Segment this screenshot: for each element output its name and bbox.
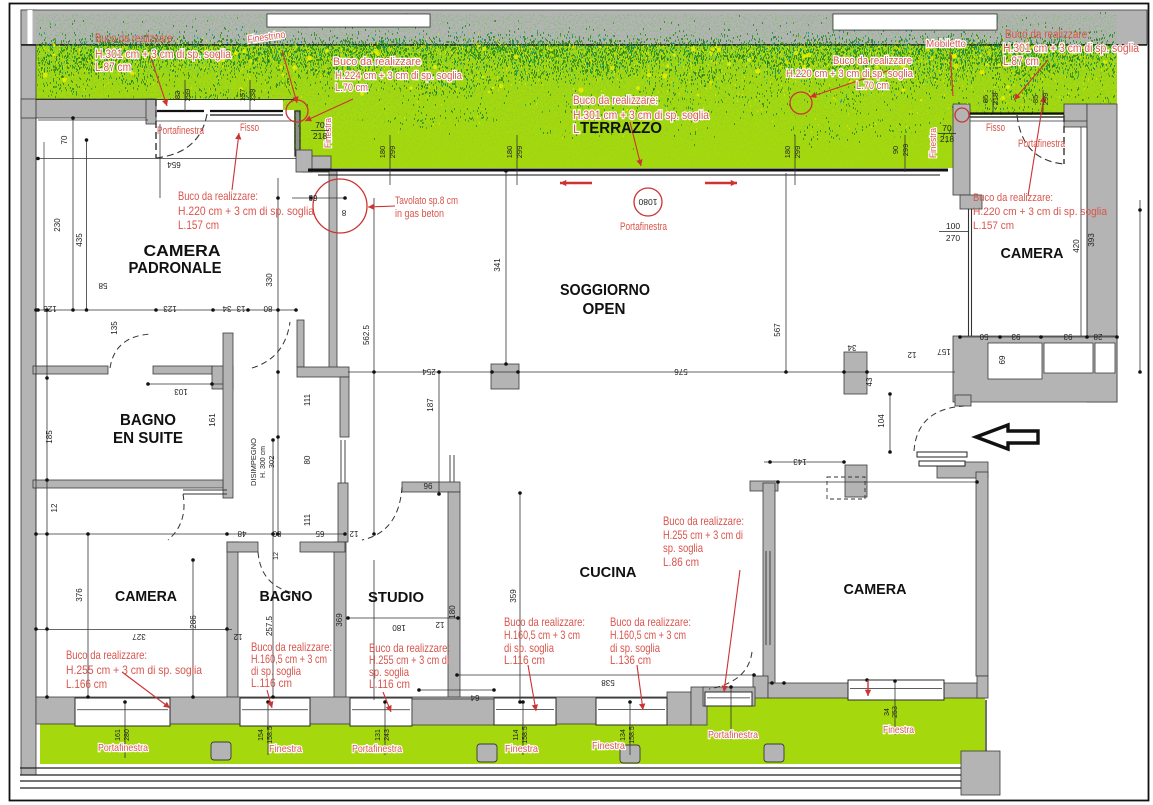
- svg-text:34: 34: [847, 343, 856, 352]
- svg-text:63: 63: [308, 193, 317, 202]
- svg-text:70: 70: [315, 120, 325, 130]
- svg-text:H. 300 cm: H. 300 cm: [260, 446, 267, 478]
- svg-text:H.301 cm + 3 cm di sp. soglia: H.301 cm + 3 cm di sp. soglia: [95, 47, 231, 61]
- svg-text:L.87 cm: L.87 cm: [95, 60, 131, 74]
- svg-text:CAMERA: CAMERA: [1001, 245, 1064, 262]
- svg-text:80: 80: [303, 455, 312, 464]
- svg-text:H.160,5 cm + 3 cm: H.160,5 cm + 3 cm: [504, 628, 580, 642]
- svg-text:135: 135: [110, 321, 119, 335]
- svg-text:Fisso: Fisso: [240, 122, 259, 134]
- svg-text:Finestra: Finestra: [928, 127, 939, 158]
- svg-text:299: 299: [515, 146, 524, 159]
- svg-text:161: 161: [115, 729, 122, 741]
- svg-text:85: 85: [1031, 95, 1040, 103]
- svg-text:654: 654: [167, 160, 181, 169]
- svg-text:538: 538: [601, 678, 615, 687]
- svg-text:CUCINA: CUCINA: [580, 564, 637, 581]
- svg-text:CAMERA: CAMERA: [144, 243, 221, 260]
- svg-text:H.220 cm + 3 cm di sp. soglia: H.220 cm + 3 cm di sp. soglia: [973, 206, 1108, 218]
- svg-text:13: 13: [236, 304, 245, 313]
- svg-text:12: 12: [50, 503, 59, 512]
- svg-text:Fisso: Fisso: [986, 122, 1005, 134]
- svg-text:Buco da realizzare: Buco da realizzare: [333, 56, 421, 68]
- svg-text:302: 302: [267, 456, 276, 469]
- svg-text:Buco da realizzare:: Buco da realizzare:: [573, 93, 658, 107]
- svg-text:393: 393: [1087, 233, 1096, 247]
- svg-text:270: 270: [946, 233, 960, 243]
- svg-text:H.255 cm + 3 cm di sp. soglia: H.255 cm + 3 cm di sp. soglia: [66, 663, 202, 677]
- svg-text:Mobiletto: Mobiletto: [926, 38, 966, 50]
- svg-text:123: 123: [43, 304, 57, 313]
- svg-text:Portafinestra: Portafinestra: [620, 221, 668, 233]
- svg-text:Buco da realizzare:: Buco da realizzare:: [66, 648, 147, 662]
- svg-text:1080: 1080: [638, 197, 657, 207]
- svg-text:12: 12: [273, 552, 280, 560]
- svg-text:Buco da realizzare:: Buco da realizzare:: [95, 31, 175, 45]
- svg-text:104: 104: [877, 414, 886, 428]
- svg-text:Buco da realizzare:: Buco da realizzare:: [1005, 29, 1090, 41]
- svg-text:STUDIO: STUDIO: [368, 589, 424, 606]
- svg-text:H.220 cm + 3 cm di sp. soglia: H.220 cm + 3 cm di sp. soglia: [786, 68, 914, 80]
- svg-text:238: 238: [248, 89, 257, 102]
- svg-text:327: 327: [132, 632, 146, 641]
- svg-text:131: 131: [375, 729, 382, 741]
- svg-text:65: 65: [315, 529, 324, 538]
- svg-text:L.87 cm: L.87 cm: [1003, 56, 1039, 68]
- svg-text:230: 230: [53, 218, 62, 232]
- svg-text:376: 376: [75, 588, 84, 602]
- svg-text:50: 50: [979, 332, 988, 341]
- svg-text:L.116 cm: L.116 cm: [504, 653, 545, 667]
- svg-text:L.116 cm: L.116 cm: [251, 676, 292, 690]
- svg-text:180: 180: [783, 146, 792, 159]
- svg-text:EN SUITE: EN SUITE: [113, 430, 183, 447]
- svg-text:299: 299: [793, 146, 802, 159]
- svg-text:359: 359: [509, 589, 518, 603]
- svg-text:254: 254: [422, 367, 436, 376]
- svg-text:Buco da realizzare:: Buco da realizzare:: [663, 514, 744, 528]
- svg-text:H.160,5 cm + 3 cm: H.160,5 cm + 3 cm: [610, 628, 686, 642]
- svg-text:12: 12: [233, 632, 242, 641]
- svg-text:48: 48: [237, 529, 246, 538]
- svg-text:Buco da realizzare: Buco da realizzare: [833, 55, 912, 67]
- svg-text:Portafinestra: Portafinestra: [352, 743, 402, 755]
- svg-text:L.157 cm: L.157 cm: [178, 218, 219, 232]
- svg-text:TERRAZZO: TERRAZZO: [580, 120, 662, 137]
- svg-text:L.157 cm: L.157 cm: [973, 220, 1014, 232]
- svg-text:299: 299: [901, 144, 910, 157]
- svg-text:158.5: 158.5: [522, 726, 529, 744]
- svg-text:299: 299: [388, 146, 397, 159]
- svg-text:PADRONALE: PADRONALE: [129, 260, 222, 277]
- svg-text:DISIMPEGNO: DISIMPEGNO: [249, 438, 258, 486]
- svg-text:134: 134: [620, 729, 627, 741]
- svg-text:435: 435: [75, 233, 84, 247]
- svg-text:80: 80: [263, 304, 272, 313]
- svg-text:Buco da realizzare:: Buco da realizzare:: [504, 615, 585, 629]
- svg-text:70: 70: [942, 123, 952, 133]
- svg-text:58: 58: [98, 281, 107, 290]
- svg-text:Portafinestra: Portafinestra: [708, 729, 758, 741]
- svg-text:576: 576: [674, 367, 688, 376]
- svg-text:L.136 cm: L.136 cm: [610, 653, 651, 667]
- svg-text:185: 185: [45, 430, 54, 444]
- svg-text:114: 114: [513, 729, 520, 740]
- svg-text:12: 12: [349, 529, 358, 538]
- svg-text:12: 12: [435, 620, 444, 629]
- svg-text:158.5: 158.5: [629, 726, 636, 744]
- svg-text:257.5: 257.5: [265, 615, 274, 636]
- svg-text:93: 93: [1063, 332, 1072, 341]
- svg-text:SOGGIORNO: SOGGIORNO: [560, 282, 650, 299]
- svg-text:BAGNO: BAGNO: [120, 412, 176, 429]
- svg-text:Tavolato sp.8 cm: Tavolato sp.8 cm: [395, 195, 458, 207]
- svg-text:143: 143: [793, 457, 807, 466]
- svg-text:111: 111: [303, 393, 312, 406]
- svg-text:218: 218: [940, 134, 954, 144]
- svg-text:157: 157: [238, 89, 247, 102]
- svg-text:64: 64: [470, 693, 479, 702]
- svg-text:85: 85: [981, 95, 990, 103]
- svg-text:Finestra: Finestra: [269, 743, 302, 755]
- svg-text:69: 69: [998, 355, 1007, 364]
- svg-text:100: 100: [946, 221, 960, 231]
- svg-text:L.70 cm: L.70 cm: [856, 80, 889, 92]
- svg-text:243: 243: [384, 729, 391, 741]
- svg-text:180: 180: [378, 146, 387, 159]
- svg-text:34: 34: [222, 304, 231, 313]
- svg-text:CAMERA: CAMERA: [115, 588, 177, 605]
- svg-text:158.5: 158.5: [267, 726, 274, 744]
- svg-text:L.86 cm: L.86 cm: [663, 555, 699, 569]
- svg-text:299: 299: [183, 89, 192, 102]
- svg-text:341: 341: [493, 258, 502, 272]
- svg-text:Portafinestra: Portafinestra: [157, 125, 205, 137]
- svg-text:sp. soglia: sp. soglia: [663, 541, 703, 555]
- svg-text:90: 90: [891, 146, 900, 154]
- svg-text:Finestra: Finestra: [505, 743, 538, 755]
- svg-text:280: 280: [124, 729, 131, 741]
- svg-text:96: 96: [423, 481, 432, 490]
- svg-text:OPEN: OPEN: [583, 301, 626, 318]
- svg-text:161: 161: [208, 413, 217, 427]
- svg-text:330: 330: [265, 273, 274, 287]
- svg-text:H.301 cm + 3 cm di sp. soglia: H.301 cm + 3 cm di sp. soglia: [1003, 43, 1140, 55]
- svg-text:H.255 cm + 3 cm di: H.255 cm + 3 cm di: [663, 528, 743, 542]
- svg-text:83: 83: [173, 91, 182, 99]
- svg-text:253: 253: [892, 706, 899, 718]
- svg-text:70: 70: [60, 135, 69, 144]
- svg-text:567: 567: [773, 323, 782, 337]
- svg-text:Buco da realizzare:: Buco da realizzare:: [178, 189, 258, 203]
- svg-text:111: 111: [303, 513, 312, 526]
- svg-text:34: 34: [884, 708, 891, 716]
- svg-text:L.70 cm: L.70 cm: [335, 82, 368, 94]
- svg-text:369: 369: [335, 613, 344, 627]
- svg-text:187: 187: [426, 398, 435, 412]
- svg-text:BAGNO: BAGNO: [260, 588, 313, 605]
- svg-text:H.220 cm + 3 cm di sp. soglia: H.220 cm + 3 cm di sp. soglia: [178, 204, 314, 218]
- svg-text:218: 218: [313, 131, 327, 141]
- svg-text:Finestra: Finestra: [883, 724, 914, 736]
- svg-text:Buco da realizzare:: Buco da realizzare:: [610, 615, 691, 629]
- svg-text:CAMERA: CAMERA: [844, 581, 907, 598]
- svg-text:Portafinestra: Portafinestra: [1018, 138, 1066, 150]
- svg-text:8: 8: [341, 208, 346, 217]
- svg-text:180: 180: [392, 623, 406, 632]
- svg-text:12: 12: [907, 350, 916, 359]
- svg-text:299: 299: [1041, 93, 1050, 106]
- svg-text:154: 154: [258, 729, 265, 741]
- svg-text:180: 180: [448, 605, 457, 619]
- svg-text:93: 93: [1011, 332, 1020, 341]
- svg-text:L: L: [573, 122, 580, 136]
- svg-text:286: 286: [189, 615, 198, 629]
- svg-text:80: 80: [272, 529, 281, 538]
- svg-text:103: 103: [174, 387, 188, 396]
- svg-text:562.5: 562.5: [362, 324, 371, 345]
- svg-text:43: 43: [865, 377, 874, 386]
- svg-text:L.166 cm: L.166 cm: [66, 677, 107, 691]
- svg-text:157: 157: [937, 347, 951, 356]
- svg-text:in gas beton: in gas beton: [395, 208, 444, 220]
- svg-text:420: 420: [1072, 239, 1081, 253]
- svg-text:L.116 cm: L.116 cm: [369, 677, 410, 691]
- svg-text:Portafinestra: Portafinestra: [98, 742, 148, 754]
- svg-text:Buco da realizzare:: Buco da realizzare:: [973, 192, 1053, 204]
- svg-text:28: 28: [1093, 332, 1102, 341]
- svg-text:H.224 cm + 3 cm di sp. soglia: H.224 cm + 3 cm di sp. soglia: [335, 70, 463, 82]
- svg-text:180: 180: [505, 146, 514, 159]
- svg-text:123: 123: [163, 304, 177, 313]
- svg-text:218: 218: [991, 93, 1000, 106]
